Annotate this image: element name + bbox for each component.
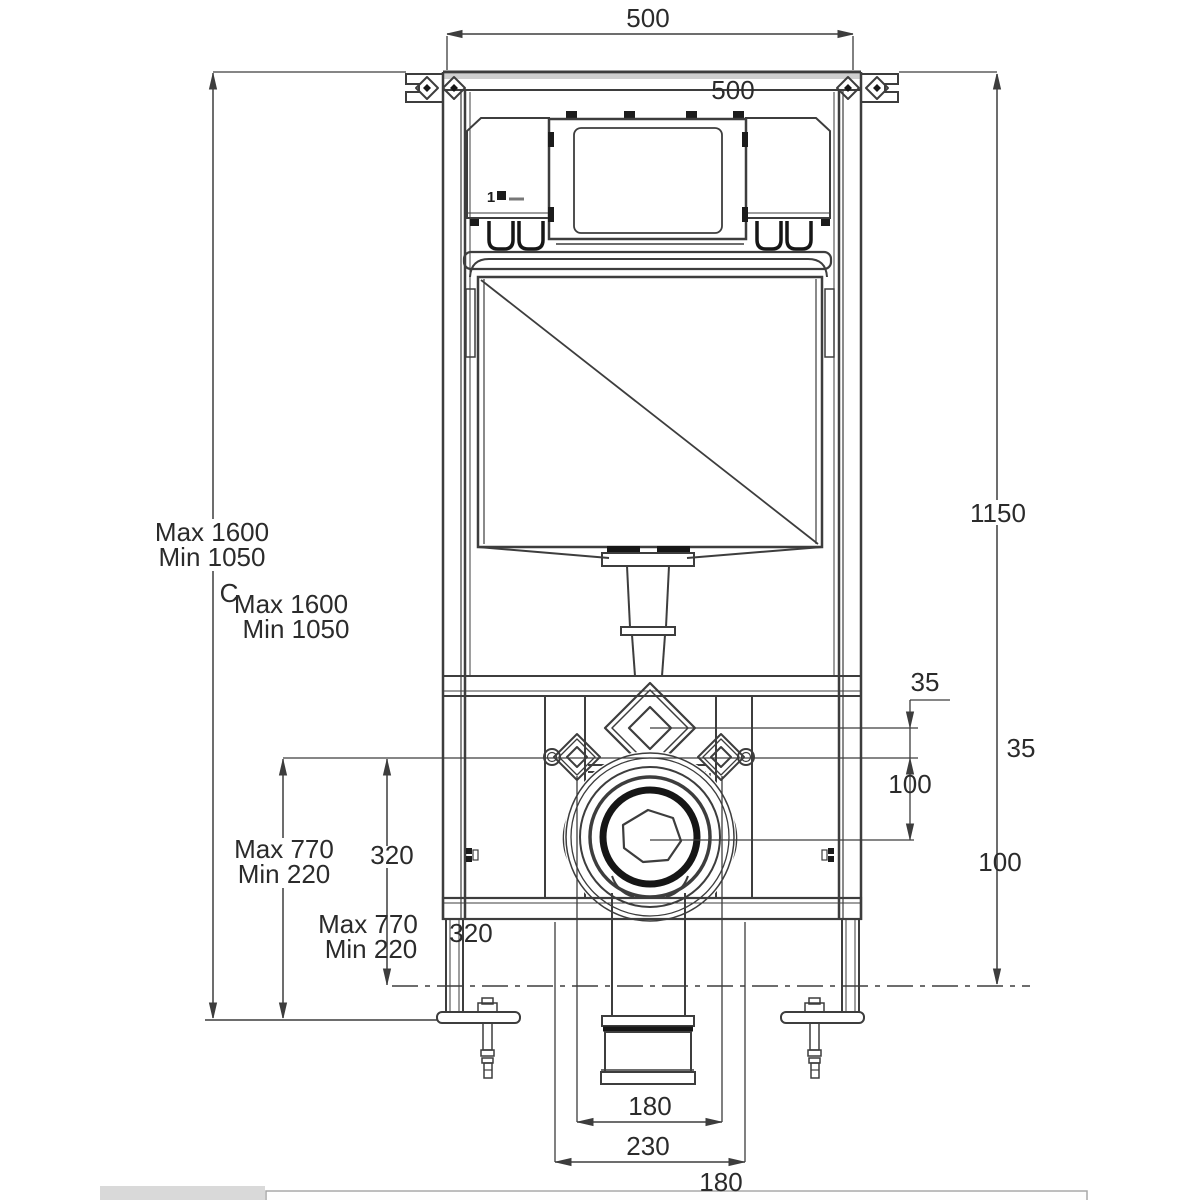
right-panel (746, 118, 830, 218)
window-clip-icon (548, 207, 554, 222)
left-panel (467, 118, 549, 218)
rail-clip-right (822, 848, 834, 862)
window-clip-icon (548, 132, 554, 147)
u-clip-icon (757, 221, 781, 249)
dim-offset-320-label: 320 (370, 840, 413, 870)
frame-top-crossbar (443, 72, 861, 90)
flush-valve-seat (602, 549, 694, 566)
dim-offset-100-dup-label: 100 (978, 847, 1021, 877)
anchor-bolt-icon (810, 1023, 819, 1050)
foot-plate-left (437, 998, 520, 1078)
wall-bracket-right (837, 74, 898, 102)
dim-top-width-inner-label: 500 (711, 75, 754, 105)
flush-pipe (621, 566, 675, 676)
dim-offset-35-label: 35 (911, 667, 940, 697)
cistern-tank (464, 252, 834, 676)
wall-bracket-left (406, 74, 465, 102)
square-marking-icon (497, 191, 506, 200)
flush-unit-marking: 1 (487, 189, 524, 206)
u-clip-icon (489, 221, 513, 249)
wc-fixing-bolt-left (544, 734, 600, 780)
dim-offset-320-dup-label: 320 (449, 918, 492, 948)
access-window-frame (549, 119, 746, 239)
tank-lid-bar (464, 252, 831, 269)
frame-left-rail (443, 72, 470, 920)
pipe-coupling (621, 627, 675, 635)
footer-white-bar (266, 1191, 1087, 1200)
window-clip-icon (742, 132, 748, 147)
dim-outlet-width-dup-label: 180 (699, 1167, 742, 1197)
rail-clip-left (466, 848, 478, 862)
access-window-opening (574, 128, 722, 233)
flush-unit-marking-label: 1 (487, 189, 495, 206)
u-clip-icon (787, 221, 811, 249)
tank-side-bracket (825, 289, 834, 357)
drawing-svg: 1 (0, 0, 1200, 1200)
footer-bars (100, 1186, 1087, 1200)
foot-plate-right (781, 998, 864, 1078)
dim-bolt-min-label: Min 220 (238, 859, 331, 889)
u-clip-icon (519, 221, 543, 249)
frame-right-rail (834, 72, 861, 920)
dim-height-min-label: Min 1050 (159, 542, 266, 572)
window-clip-icon (742, 207, 748, 222)
dimension-labels: 500 500 Max 1600 Min 1050 C Max 1600 Min… (155, 3, 1036, 1197)
dim-right-height-label: 1150 (970, 498, 1026, 528)
dim-offset-100-label: 100 (888, 769, 931, 799)
dim-flange-width-label: 230 (626, 1131, 669, 1161)
dim-height-min-dup-label: Min 1050 (243, 614, 350, 644)
tank-diagonal-line (481, 280, 818, 544)
technical-drawing-concealed-cistern-frame: 1 (0, 0, 1200, 1200)
dim-offset-35-dup-label: 35 (1007, 733, 1036, 763)
anchor-bolt-icon (483, 1023, 492, 1050)
fitting-clips-row (470, 219, 830, 249)
dim-bolt-min-dup-label: Min 220 (325, 934, 418, 964)
dim-outlet-width-label: 180 (628, 1091, 671, 1121)
footer-gray-bar (100, 1186, 265, 1200)
inspection-box-assembly: 1 (467, 111, 830, 249)
dim-top-width-label: 500 (626, 3, 669, 33)
adjustable-leg-right (842, 919, 859, 1012)
